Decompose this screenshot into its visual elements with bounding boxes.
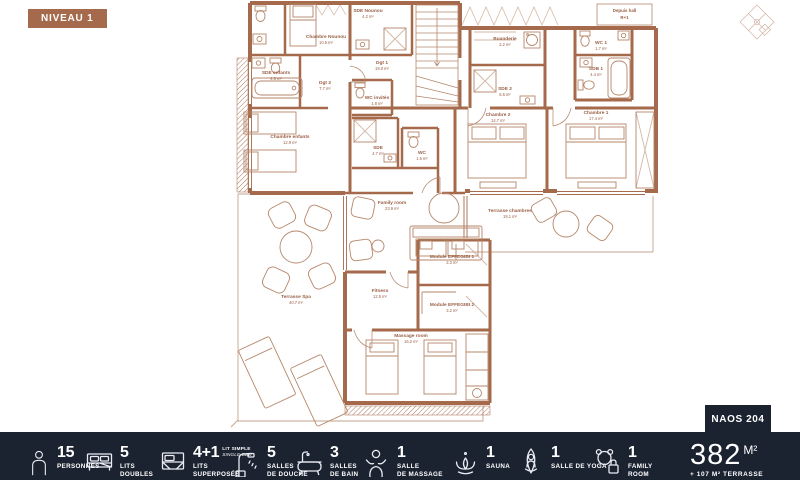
svg-text:17.4 m²: 17.4 m² (589, 116, 604, 121)
svg-text:12.9 m²: 12.9 m² (283, 140, 298, 145)
area-value: 382 (690, 439, 741, 471)
area-unit: M² (743, 443, 757, 457)
svg-text:2.2 m²: 2.2 m² (499, 42, 511, 47)
svg-text:4.7 m²: 4.7 m² (372, 151, 384, 156)
shower-icon (234, 447, 260, 477)
svg-text:19.1 m²: 19.1 m² (503, 214, 518, 219)
footer-item-bathrooms: 3 SALLESDE BAIN (296, 445, 358, 479)
footer-item-sauna: 1 SAUNA (452, 445, 510, 477)
svg-text:14.7 m²: 14.7 m² (491, 118, 506, 123)
svg-text:R+1: R+1 (620, 15, 629, 20)
count-family-room: 1 (628, 445, 653, 461)
compass-icon (740, 5, 776, 41)
svg-text:7.7 m²: 7.7 m² (319, 86, 331, 91)
double-bed-icon (86, 447, 113, 477)
svg-text:12.5 m²: 12.5 m² (373, 294, 388, 299)
footer-item-family-room: 1 FAMILYROOM (594, 445, 653, 479)
footer-bar: 15 PERSONNES 5 LITSDOUBLES (0, 432, 800, 480)
label-bunk-beds: LITS (193, 463, 208, 470)
bunk-bed-icon (160, 447, 186, 477)
terrace-outlines (231, 194, 653, 427)
label-massage: SALLE (397, 463, 419, 470)
room-labels: Chambre Nounou10.5 m² SDE Nounou4.2 m² S… (262, 8, 609, 344)
svg-text:4.2 m²: 4.2 m² (362, 14, 374, 19)
svg-text:40.7 m²: 40.7 m² (289, 300, 304, 305)
count-bathrooms: 3 (330, 445, 358, 461)
label-bathrooms: SALLES (330, 463, 357, 470)
label-sauna: SAUNA (486, 463, 510, 470)
svg-text:4.4 m²: 4.4 m² (590, 72, 602, 77)
svg-text:5.5 m²: 5.5 m² (499, 92, 511, 97)
page: Depuis hall R+1 Chambre Nounou10.5 m² SD… (0, 0, 800, 480)
svg-text:16.2 m²: 16.2 m² (404, 339, 419, 344)
count-massage: 1 (397, 445, 443, 461)
floor-plan: Depuis hall R+1 Chambre Nounou10.5 m² SD… (0, 0, 800, 432)
person-icon (28, 447, 50, 477)
sauna-icon (452, 447, 479, 477)
hall-note: Depuis hall R+1 (597, 4, 652, 25)
count-double-beds: 5 (120, 445, 153, 461)
staircase (416, 5, 458, 105)
count-bunk-beds: 4+1 (193, 445, 219, 461)
terrace-area: + 107 M² TERRASSE (690, 471, 763, 478)
label-double-beds: LITS (120, 463, 135, 470)
label-showers: SALLES (267, 463, 294, 470)
label-family-room: FAMILY (628, 463, 653, 470)
svg-text:4.6 m²: 4.6 m² (270, 76, 282, 81)
unit-tab: NAOS 204 (705, 405, 771, 433)
svg-text:Depuis hall: Depuis hall (613, 8, 636, 13)
footer-item-massage: 1 SALLEDE MASSAGE (362, 445, 443, 479)
bathtub-icon (296, 447, 323, 477)
family-icon (594, 447, 621, 477)
svg-text:1.6 m²: 1.6 m² (416, 156, 428, 161)
total-area: 382M² + 107 M² TERRASSE (690, 441, 763, 478)
svg-text:3.2 m²: 3.2 m² (446, 308, 458, 313)
svg-text:19.0 m²: 19.0 m² (375, 66, 390, 71)
svg-text:3.3 m²: 3.3 m² (446, 260, 458, 265)
svg-text:10.5 m²: 10.5 m² (319, 40, 334, 45)
count-sauna: 1 (486, 445, 510, 461)
level-badge: NIVEAU 1 (28, 9, 107, 28)
footer-item-double-beds: 5 LITSDOUBLES (86, 445, 153, 479)
yoga-icon (518, 447, 544, 477)
svg-text:1.7 m²: 1.7 m² (595, 46, 607, 51)
svg-text:23.9 m²: 23.9 m² (385, 206, 400, 211)
svg-text:1.8 m²: 1.8 m² (371, 101, 383, 106)
massage-icon (362, 447, 390, 477)
